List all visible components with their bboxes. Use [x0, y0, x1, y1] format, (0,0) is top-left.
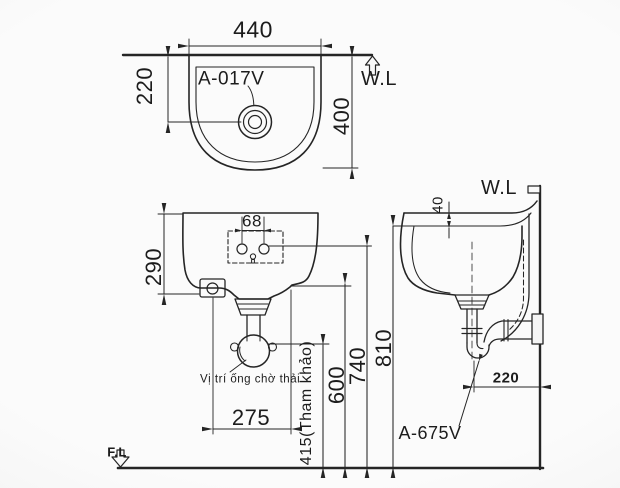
dim-220-top-label: 220	[134, 67, 156, 105]
dim-415-ref-label: 415(Tham khảo)	[299, 341, 315, 465]
waste-position-note: Vị trí ống chờ thải	[200, 374, 300, 386]
dim-40-label: 40	[431, 196, 446, 214]
faucet-hole-right	[259, 244, 269, 254]
dim-810-label: 810	[373, 329, 395, 367]
dim-400-label: 400	[331, 97, 353, 135]
dim-220-side-label: 220	[493, 371, 520, 386]
drain-hole-top	[239, 106, 272, 139]
trap-part-leader	[459, 361, 479, 426]
floor-reference	[112, 450, 543, 468]
dim-290-label: 290	[143, 248, 165, 286]
dim-440-label: 440	[233, 19, 273, 42]
dim-68-label: 68	[242, 213, 262, 230]
part-label-a017v: A-017V	[198, 70, 264, 89]
waste-note-leader	[230, 360, 246, 372]
rim-top-line-side	[404, 201, 537, 213]
anchor-slot-icon	[250, 254, 255, 263]
trap-assembly-side	[455, 242, 543, 360]
bowl-inner-side	[412, 226, 450, 293]
dim-275-label: 275	[232, 407, 270, 429]
rim-inner-line-side	[414, 213, 531, 226]
dim-740-label: 740	[347, 347, 369, 385]
faucet-hole-left	[237, 244, 247, 254]
water-line-label-top: W.L	[361, 69, 397, 89]
back-panel-side	[501, 214, 529, 341]
water-line-label-side: W.L	[481, 178, 517, 198]
water-line-marker-icon	[528, 186, 540, 193]
part-label-a675v: A-675V	[398, 424, 461, 442]
technical-drawing-canvas: 440 W.L A-017V 220 400 68 290 Vị trí ống…	[0, 0, 620, 488]
drain-assembly-front	[231, 299, 277, 367]
floor-line-label: F.L	[107, 446, 127, 459]
bowl-profile-right-side	[489, 226, 522, 295]
bowl-profile-left-side	[401, 213, 455, 295]
